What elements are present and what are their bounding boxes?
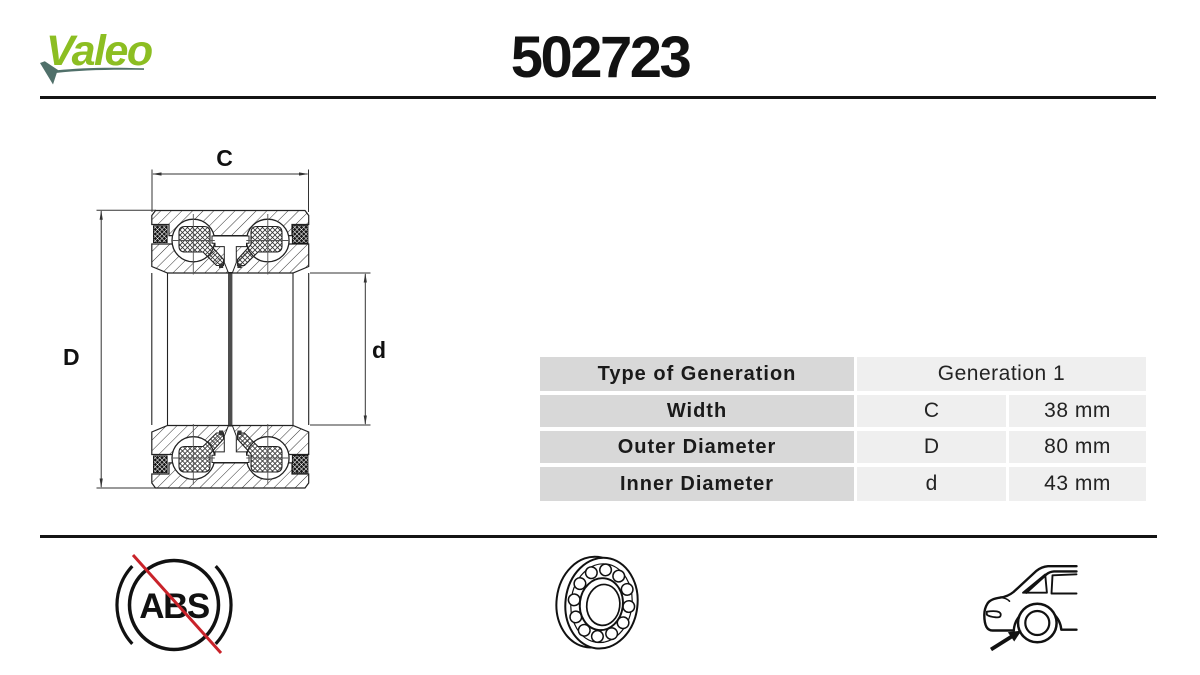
- svg-text:D: D: [63, 344, 80, 370]
- svg-text:ABS: ABS: [139, 587, 209, 626]
- svg-text:C: C: [216, 145, 233, 171]
- svg-text:d: d: [372, 337, 386, 363]
